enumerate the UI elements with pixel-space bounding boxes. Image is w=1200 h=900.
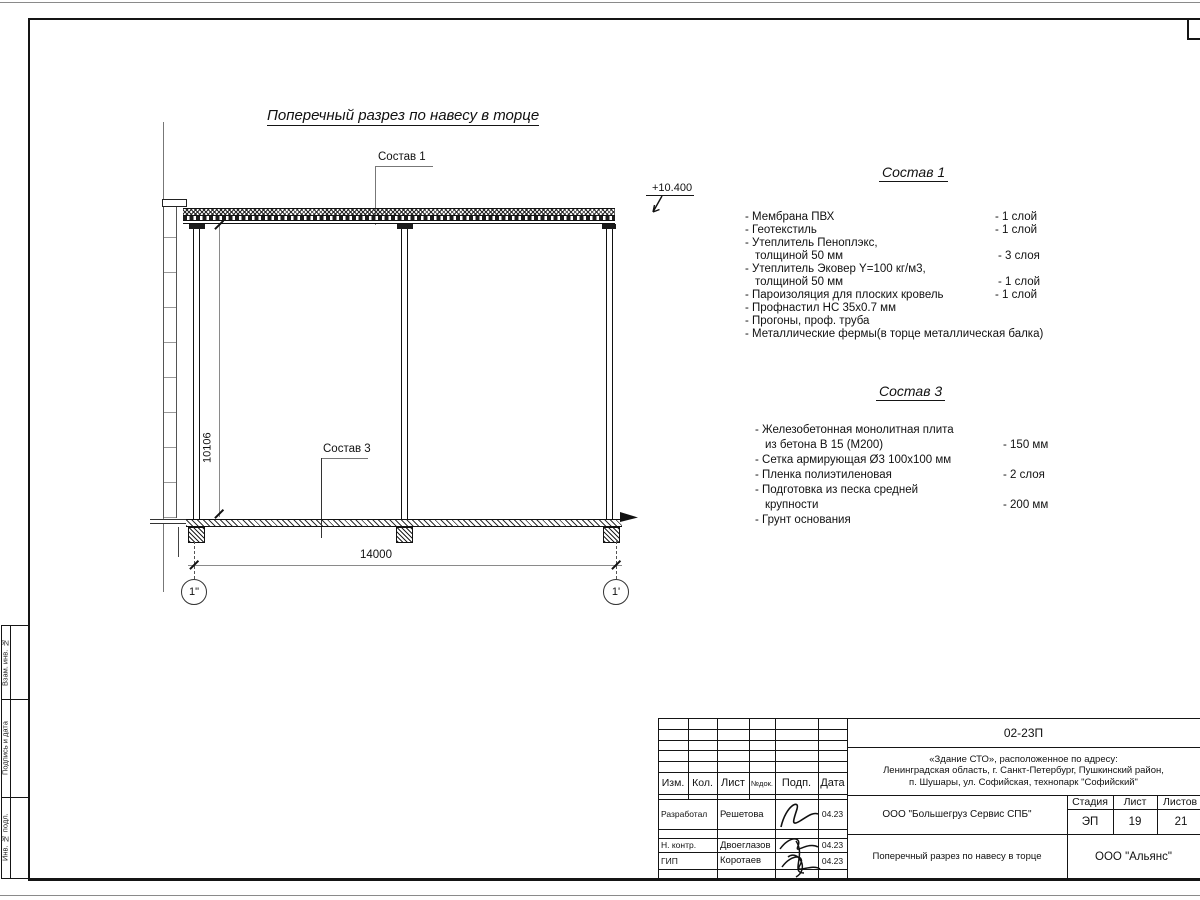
line: - 2 слоя: [1003, 468, 1045, 483]
line: - Грунт основания: [755, 514, 851, 526]
format-box-left: [1187, 18, 1189, 38]
line: - 150 мм: [1003, 438, 1048, 453]
col-header-data: Дата: [818, 772, 847, 794]
sostav3-heading: Состав 3: [876, 383, 945, 401]
signature: [778, 797, 820, 831]
row-developer-name: Решетова: [720, 799, 774, 829]
row-ncontrol-role: Н. контр.: [661, 838, 716, 852]
line: - Грунт основания: [755, 513, 1155, 528]
signature: [776, 833, 824, 879]
callout-floor-shelf: [321, 458, 368, 459]
line: [1, 878, 28, 879]
line: - 1 слой: [995, 224, 1037, 237]
line: [658, 718, 659, 880]
line: - 1 слой: [998, 276, 1040, 289]
line: - Железобетонная монолитная плита: [755, 423, 1155, 438]
margin-label-podpis: Подпись и дата: [0, 699, 10, 797]
slab-left-extension: [150, 519, 186, 524]
project-code: 02-23П: [847, 718, 1200, 747]
line: - Геотекстиль- 1 слой: [745, 224, 1145, 237]
line: - Подготовка из песка средней: [755, 484, 918, 496]
line: из бетона В 15 (М200): [765, 439, 883, 451]
line: - Геотекстиль: [745, 224, 817, 236]
line: [10, 625, 11, 878]
line: [178, 527, 179, 557]
sheet-label: Лист: [1113, 795, 1157, 809]
col-header-izm: Изм.: [658, 772, 688, 794]
line: п. Шушары, ул. Софийская, технопарк "Соф…: [909, 777, 1138, 788]
line: толщиной 50 мм: [755, 276, 843, 288]
stage-value: ЭП: [1067, 809, 1113, 834]
row-gip-name: Коротаев: [720, 852, 774, 869]
page-edge-bottom: [0, 895, 1200, 896]
column-left: [193, 229, 200, 519]
frame-top: [28, 18, 1200, 20]
axis-label: 1': [612, 586, 620, 598]
line: - Утеплитель Эковер Y=100 кг/м3,: [745, 263, 926, 275]
format-box-bottom: [1187, 38, 1200, 40]
elevation-mark-value: +10.400: [652, 182, 692, 194]
line: [616, 541, 617, 579]
callout-roof-shelf: [375, 166, 433, 167]
roof-insulation-band: [183, 208, 615, 216]
col-header-list: Лист: [717, 772, 749, 794]
line: - Пленка полиэтиленовая- 2 слоя: [755, 468, 1155, 483]
adjacent-wall-panels: [163, 203, 177, 518]
dim-line-vertical: [219, 224, 220, 517]
foundation-block: [396, 527, 413, 543]
line: - Утеплитель Эковер Y=100 кг/м3,: [745, 263, 1145, 276]
sostav3-list: - Железобетонная монолитная плита из бет…: [755, 423, 1155, 528]
line: - Профнастил НС 35х0.7 мм: [745, 302, 1145, 315]
col-header-podp: Подп.: [775, 772, 818, 794]
line: [194, 541, 195, 579]
dim-line-horizontal: [188, 565, 622, 566]
row-developer-role: Разработал: [661, 799, 716, 829]
column-right: [606, 229, 613, 519]
line: [653, 196, 662, 212]
column-middle: [401, 229, 408, 519]
line: - Железобетонная монолитная плита: [755, 424, 954, 436]
sheets-total: 21: [1157, 809, 1200, 834]
line: - Утеплитель Пеноплэкс,: [745, 237, 1145, 250]
document-title: Поперечный разрез по навесу в торце: [847, 834, 1067, 879]
slab-right-edge-wedge: [620, 512, 638, 522]
line: Ленинградская область, г. Санкт-Петербур…: [883, 765, 1164, 776]
axis-label: 1": [189, 586, 199, 598]
line: - Профнастил НС 35х0.7 мм: [745, 302, 896, 314]
organization-name: ООО "Альянс": [1067, 834, 1200, 879]
line: - 200 мм: [1003, 498, 1048, 513]
elevation-arrow-icon: [645, 195, 669, 215]
row-ncontrol-name: Двоеглазов: [720, 838, 774, 852]
sheet-number: 19: [1113, 809, 1157, 834]
line: «Здание СТО», расположенное по адресу:: [929, 754, 1118, 765]
dim-height-value: 10106: [201, 419, 214, 477]
foundation-block: [603, 527, 620, 543]
wall-cap: [162, 199, 187, 207]
line: - Прогоны, проф. труба: [745, 315, 869, 327]
frame-left: [28, 18, 30, 881]
line: - Пленка полиэтиленовая: [755, 469, 892, 481]
floor-slab: [186, 519, 622, 527]
page-edge-top: [0, 2, 1200, 3]
line: - Подготовка из песка средней: [755, 483, 1155, 498]
sheets-label: Листов: [1163, 795, 1200, 809]
col-header-kol: Кол.: [688, 772, 717, 794]
line: толщиной 50 мм- 1 слой: [745, 276, 1145, 289]
company-name: ООО "Большегруз Сервис СПБ": [847, 795, 1067, 834]
row-developer-date: 04.23: [818, 799, 847, 829]
drawing-sheet: Взам. инв. № Подпись и дата Инв. № подл.…: [0, 0, 1200, 900]
stage-label: Стадия: [1067, 795, 1113, 809]
axis-marker-right: 1': [603, 579, 629, 605]
margin-label-inv: Инв. № подл.: [0, 797, 10, 878]
line: крупности: [765, 499, 818, 511]
line: - Металлические фермы(в торце металличес…: [745, 328, 1043, 340]
margin-label-vzam: Взам. инв. №: [0, 625, 10, 699]
line: - Мембрана ПВХ- 1 слой: [745, 211, 1145, 224]
line: толщиной 50 мм: [755, 250, 843, 262]
line: - Пароизоляция для плоских кровель- 1 сл…: [745, 289, 1145, 302]
sostav1-heading: Состав 1: [879, 164, 948, 182]
line: - Металлические фермы(в торце металличес…: [745, 328, 1145, 341]
row-gip-role: ГИП: [661, 852, 716, 869]
project-address: «Здание СТО», расположенное по адресу: Л…: [847, 748, 1200, 794]
drawing-title: Поперечный разрез по навесу в торце: [267, 107, 539, 126]
line: - Утеплитель Пеноплэкс,: [745, 237, 878, 249]
dim-width-value: 14000: [352, 549, 400, 561]
line: - Пароизоляция для плоских кровель: [745, 289, 944, 301]
line: [780, 839, 820, 877]
line: [717, 718, 718, 880]
line: толщиной 50 мм- 3 слоя: [745, 250, 1145, 263]
line: - Сетка армирующая Ø3 100х100 мм: [755, 454, 951, 466]
callout-roof-label: Состав 1: [378, 151, 426, 163]
col-header-ndok: №док.: [749, 772, 775, 794]
line: - Прогоны, проф. труба: [745, 315, 1145, 328]
line: - Мембрана ПВХ: [745, 211, 834, 223]
line: - 1 слой: [995, 289, 1037, 302]
line: - Сетка армирующая Ø3 100х100 мм: [755, 453, 1155, 468]
axis-marker-left: 1": [181, 579, 207, 605]
foundation-block: [188, 527, 205, 543]
line: - 3 слоя: [998, 250, 1040, 263]
sostav1-list: - Мембрана ПВХ- 1 слой - Геотекстиль- 1 …: [745, 211, 1145, 341]
line: крупности- 200 мм: [755, 498, 1155, 513]
line: [781, 804, 818, 827]
line: из бетона В 15 (М200)- 150 мм: [755, 438, 1155, 453]
callout-floor-label: Состав 3: [323, 443, 371, 455]
line: - 1 слой: [995, 211, 1037, 224]
